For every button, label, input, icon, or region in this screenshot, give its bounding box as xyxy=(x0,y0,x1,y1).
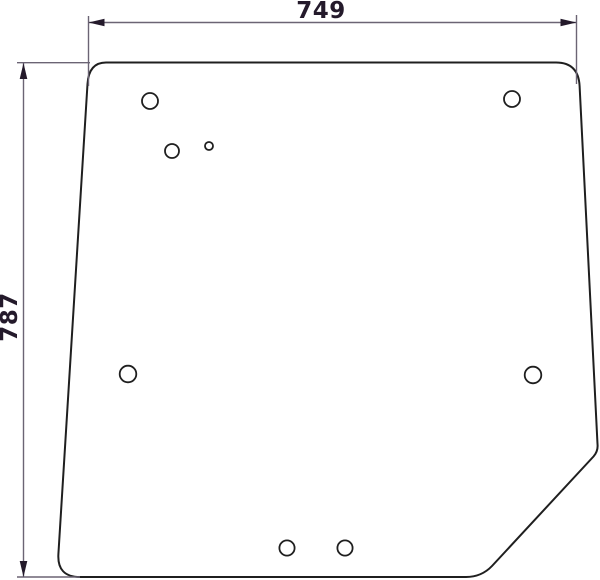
glass-panel-outline xyxy=(58,63,597,578)
hole-top-right xyxy=(504,91,520,107)
hole-bottom-right xyxy=(337,540,352,555)
mounting-holes-group xyxy=(120,91,542,556)
width-arrow-right-icon xyxy=(561,19,577,27)
hole-mid-left xyxy=(120,366,137,383)
width-dimension-value: 749 xyxy=(296,0,346,24)
height-dimension-value: 787 xyxy=(0,292,23,342)
height-arrow-top-icon xyxy=(20,63,28,79)
drawing-canvas: 749 787 xyxy=(0,0,600,580)
width-dimension: 749 xyxy=(89,0,577,86)
hole-top-left xyxy=(142,93,158,109)
width-arrow-left-icon xyxy=(89,19,105,27)
hole-upper-left-mid xyxy=(165,144,179,158)
technical-drawing-svg: 749 787 xyxy=(0,0,600,580)
hole-upper-left-small xyxy=(205,142,213,150)
hole-bottom-left xyxy=(279,540,294,555)
hole-mid-right xyxy=(525,367,542,384)
height-arrow-bottom-icon xyxy=(20,561,28,577)
height-dimension: 787 xyxy=(0,63,90,577)
